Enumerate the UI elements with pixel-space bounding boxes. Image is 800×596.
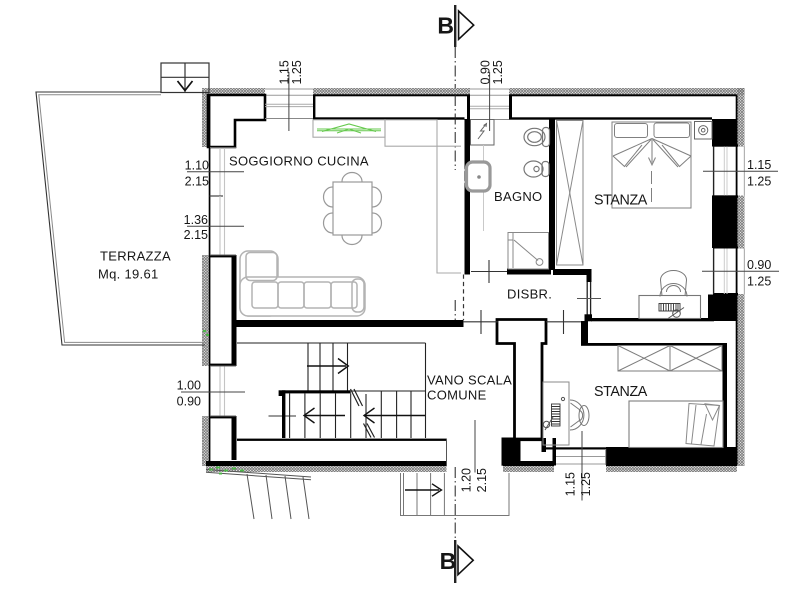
svg-text:1.15: 1.15	[747, 158, 771, 172]
svg-text:1.36: 1.36	[184, 213, 208, 227]
svg-text:DISBR.: DISBR.	[507, 287, 552, 302]
svg-text:0.90: 0.90	[747, 258, 771, 272]
svg-text:Mq. 19.61: Mq. 19.61	[98, 267, 159, 282]
svg-text:TERRAZZA: TERRAZZA	[100, 249, 171, 264]
svg-text:2.15: 2.15	[184, 228, 208, 242]
svg-text:1.15: 1.15	[564, 472, 578, 496]
svg-text:2.15: 2.15	[475, 468, 489, 492]
svg-text:COMUNE: COMUNE	[427, 388, 487, 403]
svg-text:0.90: 0.90	[177, 394, 201, 408]
svg-text:STANZA: STANZA	[594, 384, 648, 400]
svg-text:1.25: 1.25	[747, 274, 771, 288]
svg-text:B: B	[437, 13, 454, 39]
svg-text:VANO SCALA: VANO SCALA	[427, 373, 512, 388]
svg-text:STANZA: STANZA	[594, 193, 648, 209]
svg-text:SOGGIORNO CUCINA: SOGGIORNO CUCINA	[229, 154, 369, 169]
svg-text:1.25: 1.25	[290, 60, 304, 84]
svg-text:1.00: 1.00	[177, 379, 201, 393]
svg-text:BAGNO: BAGNO	[494, 189, 542, 204]
svg-text:1.10: 1.10	[185, 158, 209, 172]
svg-text:1.25: 1.25	[579, 472, 593, 496]
svg-text:1.20: 1.20	[460, 468, 474, 492]
svg-text:B: B	[440, 548, 457, 574]
svg-text:1.25: 1.25	[747, 174, 771, 188]
svg-text:2.15: 2.15	[185, 174, 209, 188]
svg-text:1.25: 1.25	[491, 60, 505, 84]
